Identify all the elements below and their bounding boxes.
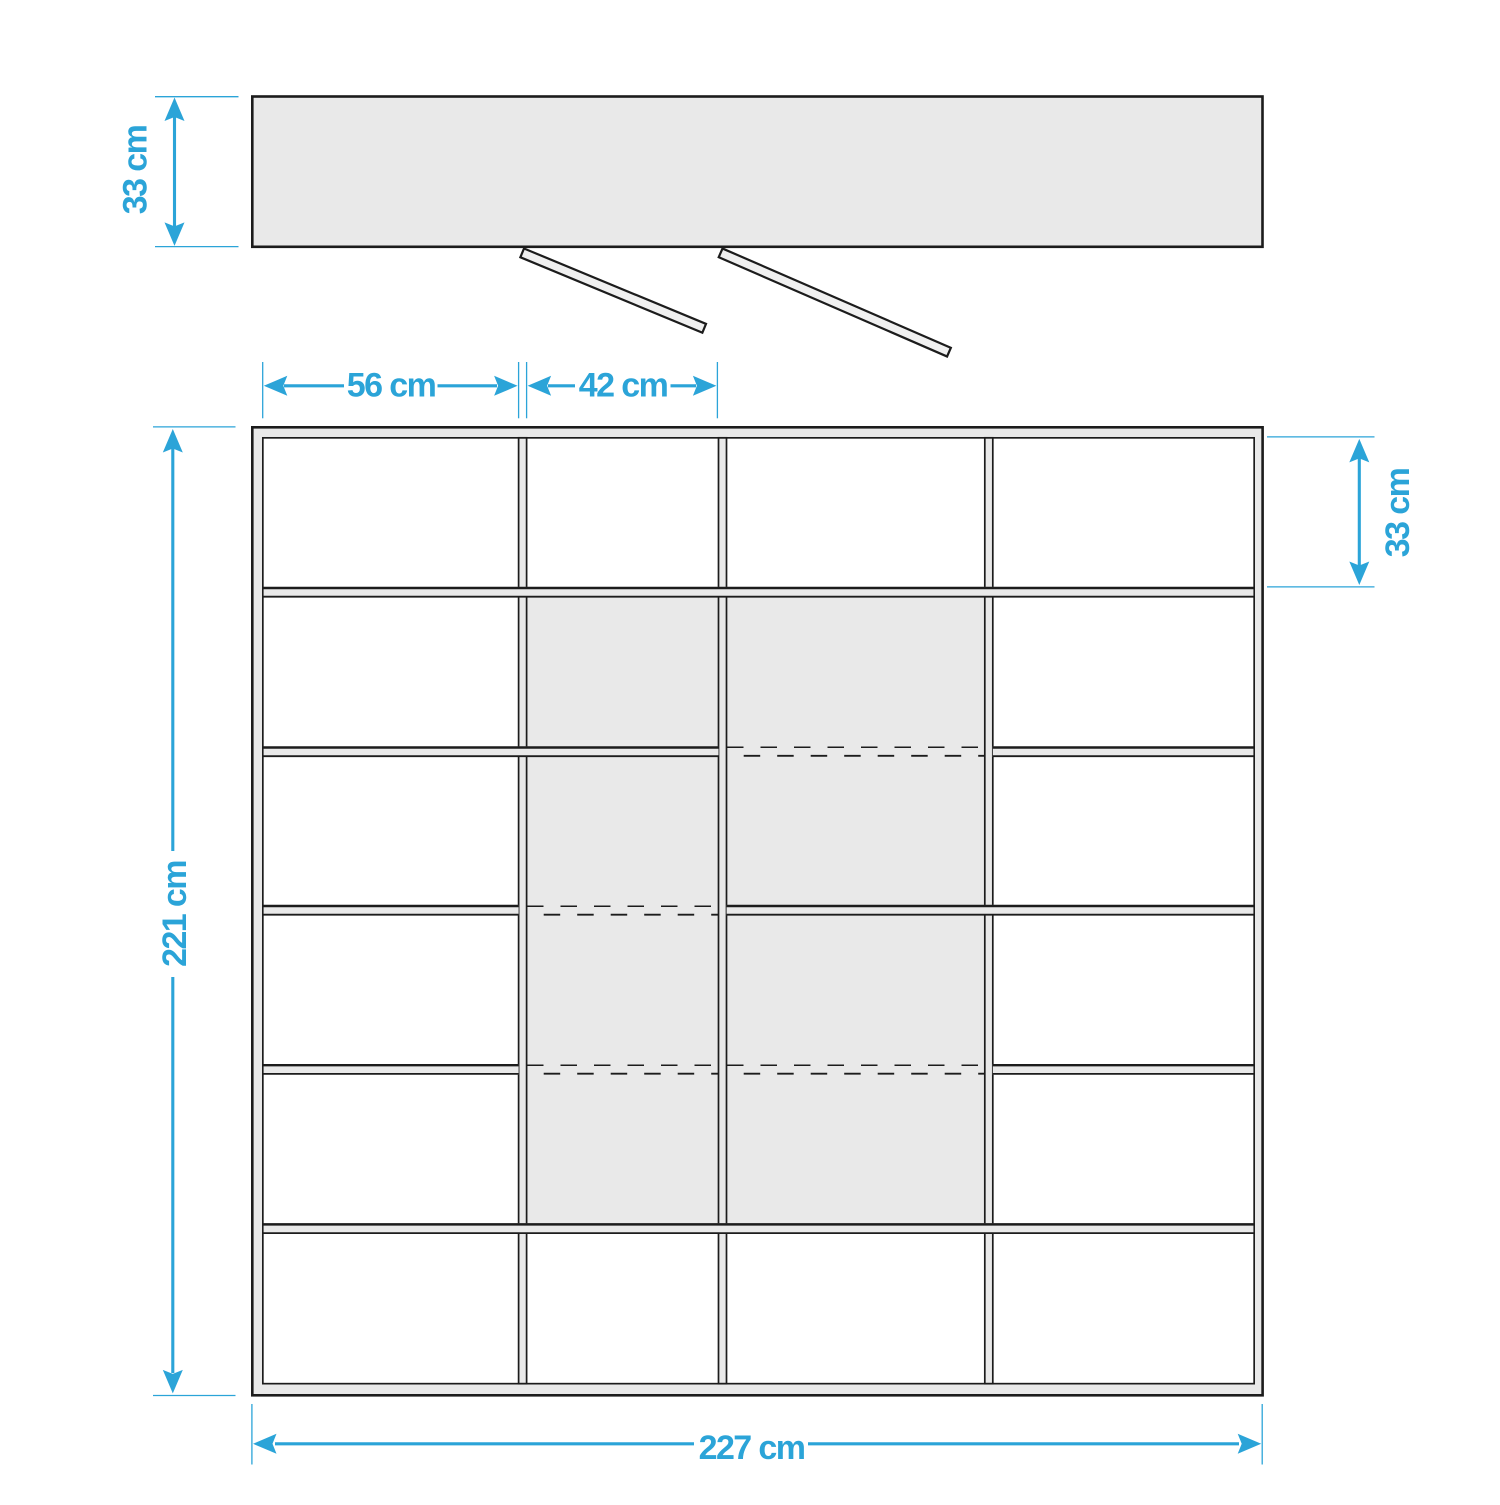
svg-text:33 cm: 33 cm [117, 125, 155, 214]
svg-text:221 cm: 221 cm [156, 861, 194, 967]
svg-text:56 cm: 56 cm [347, 367, 436, 405]
svg-text:227 cm: 227 cm [699, 1429, 805, 1467]
svg-text:42 cm: 42 cm [579, 367, 668, 405]
svg-text:33 cm: 33 cm [1379, 468, 1417, 557]
